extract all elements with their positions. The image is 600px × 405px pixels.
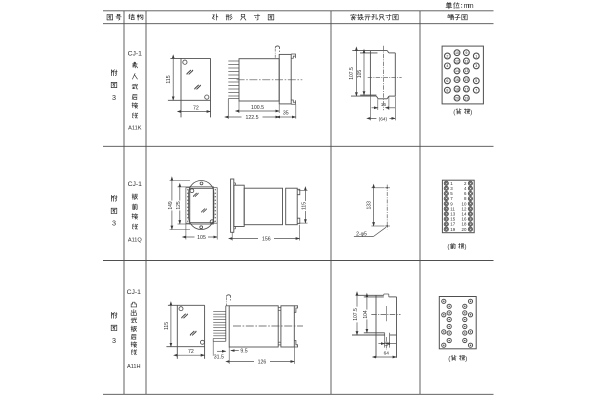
svg-text:16: 16 [455, 78, 459, 82]
svg-text:14: 14 [455, 69, 459, 73]
svg-text:107.5: 107.5 [349, 67, 355, 80]
svg-text:CJ-1: CJ-1 [128, 181, 143, 188]
svg-text:35: 35 [283, 110, 289, 116]
svg-text:3: 3 [475, 64, 477, 68]
svg-text:20: 20 [462, 227, 467, 232]
svg-text:CJ-1: CJ-1 [128, 50, 143, 57]
svg-text:20: 20 [455, 96, 459, 100]
svg-text:126: 126 [258, 359, 267, 365]
svg-text:A11H: A11H [127, 364, 141, 370]
svg-text:): ) [470, 109, 472, 116]
svg-text:10: 10 [455, 51, 459, 55]
svg-text:CJ-1: CJ-1 [127, 289, 142, 296]
svg-text:11: 11 [465, 59, 469, 63]
svg-text:A11K: A11K [128, 126, 142, 132]
svg-text:2: 2 [446, 54, 448, 58]
svg-text:): ) [465, 355, 467, 362]
svg-text:72: 72 [188, 349, 194, 355]
svg-text:3: 3 [112, 219, 116, 228]
svg-text:133: 133 [366, 201, 372, 210]
svg-text:19: 19 [450, 227, 455, 232]
svg-text:19: 19 [464, 96, 468, 100]
svg-text:31.5: 31.5 [214, 354, 224, 360]
svg-text:1: 1 [475, 54, 477, 58]
svg-text:6: 6 [446, 79, 448, 83]
svg-text:15: 15 [464, 78, 468, 82]
svg-text:16: 16 [383, 341, 388, 347]
svg-text:3: 3 [112, 93, 116, 102]
svg-text:149: 149 [168, 201, 174, 210]
svg-text:17: 17 [464, 87, 468, 91]
svg-text:64: 64 [384, 351, 390, 357]
svg-text:7: 7 [475, 89, 477, 93]
svg-text:4: 4 [446, 64, 448, 68]
svg-text:72: 72 [193, 105, 199, 111]
svg-text:100.5: 100.5 [251, 105, 264, 111]
svg-text:9.5: 9.5 [240, 349, 247, 355]
svg-text:13: 13 [464, 69, 468, 73]
svg-text:12: 12 [455, 59, 459, 63]
svg-text:107.5: 107.5 [353, 308, 359, 321]
svg-text:125: 125 [176, 201, 182, 210]
svg-text:8: 8 [446, 89, 448, 93]
svg-text:115: 115 [166, 75, 172, 83]
svg-text:156: 156 [262, 236, 271, 242]
svg-text:9: 9 [465, 51, 467, 55]
svg-text:115: 115 [164, 322, 170, 330]
svg-text:104: 104 [363, 310, 369, 319]
svg-text:): ) [464, 244, 466, 251]
svg-text:(64): (64) [379, 116, 388, 122]
svg-text:16: 16 [381, 102, 387, 108]
svg-text:m: m [468, 1, 474, 10]
svg-text:105: 105 [357, 70, 363, 79]
svg-text:105: 105 [197, 235, 206, 241]
svg-text:5: 5 [475, 79, 477, 83]
svg-text:18: 18 [455, 87, 459, 91]
svg-text:122.5: 122.5 [246, 115, 259, 121]
svg-text:A11Q: A11Q [128, 238, 143, 244]
svg-text:115: 115 [301, 202, 307, 210]
svg-text:3: 3 [112, 336, 116, 345]
